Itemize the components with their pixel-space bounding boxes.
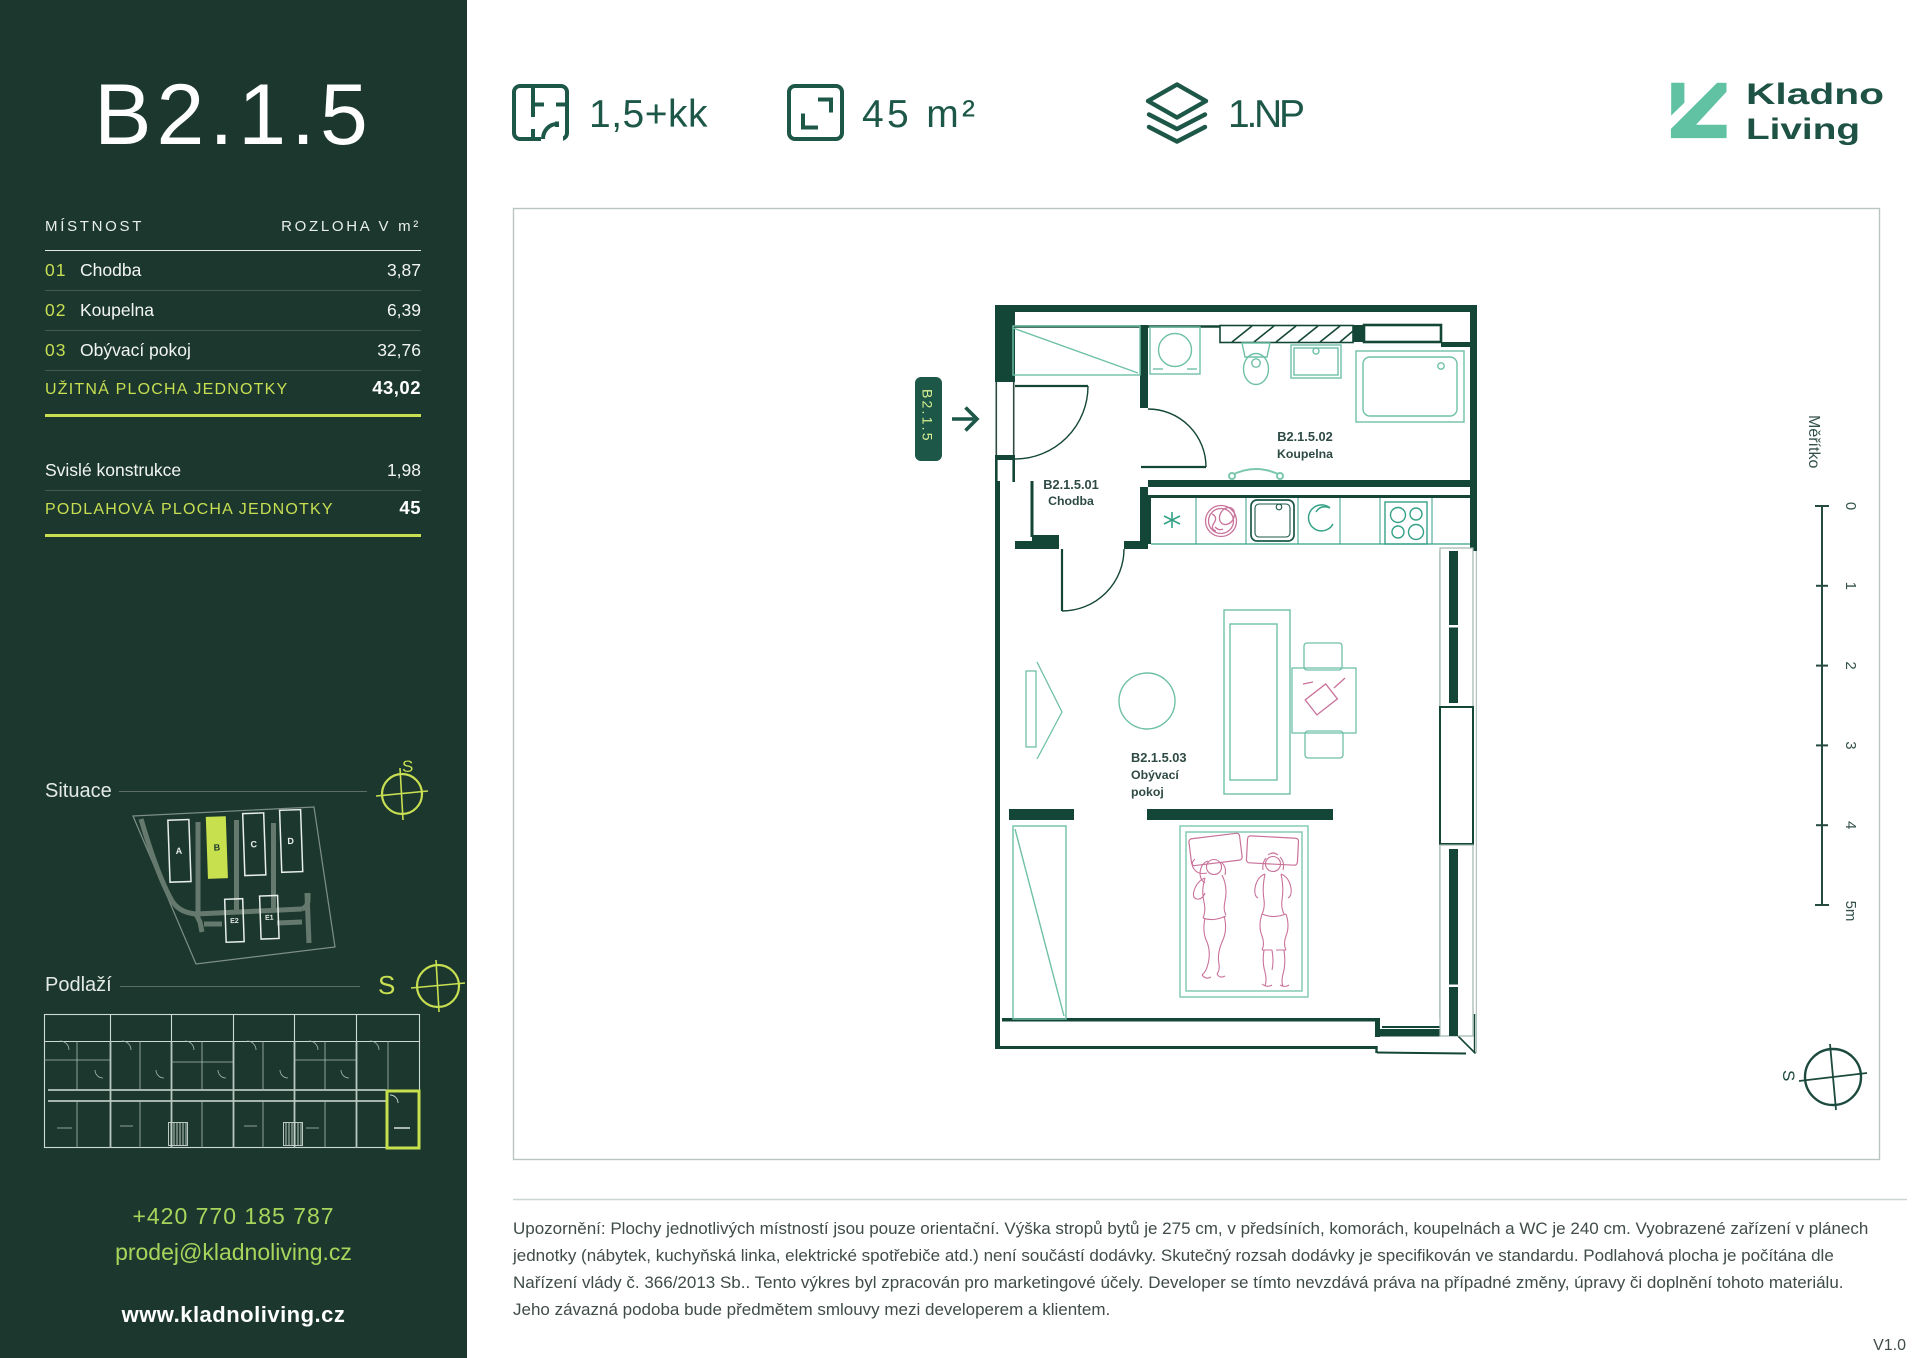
svg-text:Měřítko: Měřítko [1805, 415, 1822, 468]
svg-text:B2.1.5.02: B2.1.5.02 [1277, 429, 1333, 444]
svg-text:1: 1 [1842, 582, 1859, 590]
svg-text:Kladno: Kladno [1746, 78, 1884, 111]
svg-text:3: 3 [1842, 741, 1859, 749]
svg-text:B2.1.5.01: B2.1.5.01 [1043, 477, 1099, 492]
svg-text:2: 2 [1842, 661, 1859, 669]
svg-text:1.NP: 1.NP [1228, 93, 1305, 136]
svg-text:E2: E2 [230, 918, 239, 925]
svg-text:0: 0 [1842, 502, 1859, 510]
svg-text:C: C [250, 839, 257, 849]
svg-text:D: D [287, 836, 294, 846]
svg-text:Obývací: Obývací [1131, 768, 1179, 782]
svg-text:E1: E1 [265, 915, 274, 922]
svg-text:Koupelna: Koupelna [1277, 447, 1333, 461]
svg-text:5m: 5m [1842, 901, 1859, 922]
svg-text:45 m²: 45 m² [862, 93, 975, 136]
svg-text:B2.1.5.03: B2.1.5.03 [1131, 750, 1187, 765]
svg-text:S: S [1779, 1070, 1798, 1081]
svg-text:B: B [213, 842, 220, 852]
svg-text:S: S [378, 970, 395, 1000]
svg-text:A: A [176, 846, 183, 856]
svg-text:B2.1.5: B2.1.5 [920, 389, 936, 443]
svg-text:pokoj: pokoj [1131, 785, 1164, 799]
svg-text:Chodba: Chodba [1048, 494, 1094, 508]
svg-text:4: 4 [1842, 821, 1859, 829]
svg-text:1,5+kk: 1,5+kk [589, 93, 708, 136]
svg-text:Living: Living [1746, 113, 1860, 146]
